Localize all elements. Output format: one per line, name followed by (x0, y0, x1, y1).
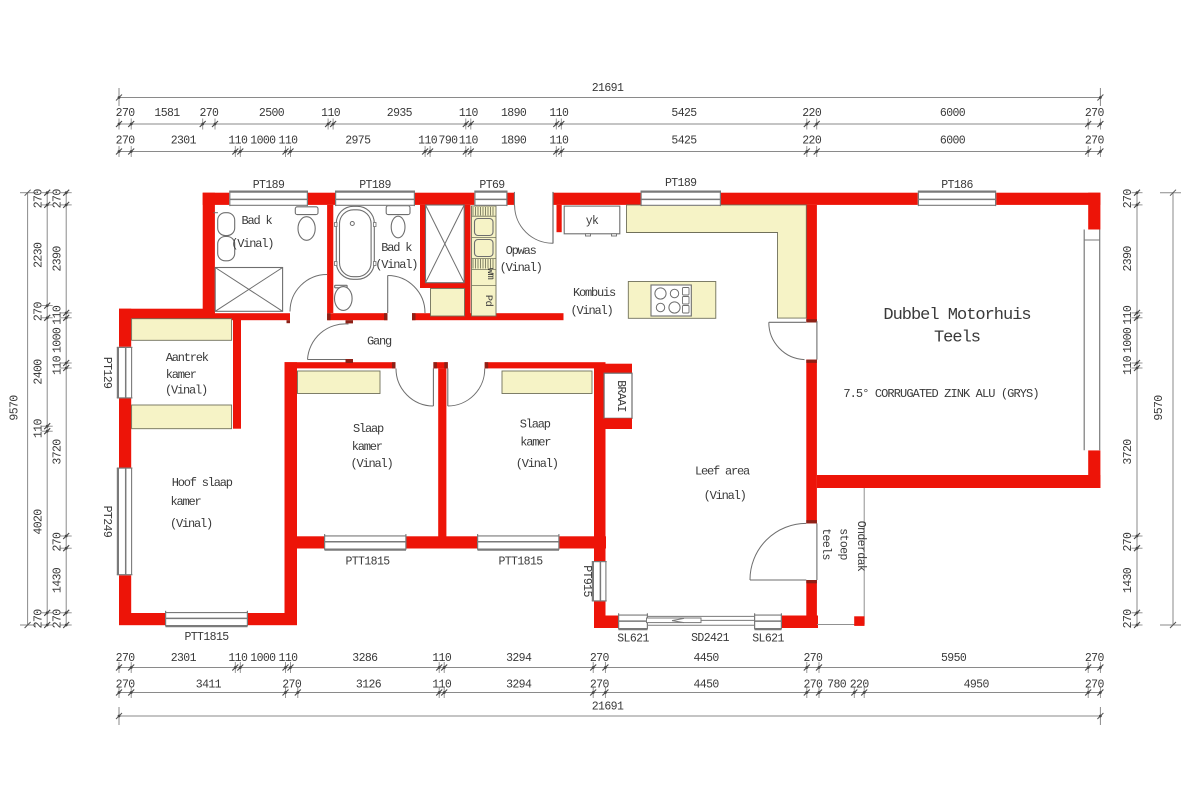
svg-text:270: 270 (33, 302, 46, 322)
svg-text:(Vinal): (Vinal) (570, 304, 612, 318)
svg-text:270: 270 (199, 107, 219, 120)
svg-text:110: 110 (279, 652, 299, 665)
svg-text:1890: 1890 (501, 107, 527, 120)
svg-text:270: 270 (1085, 652, 1105, 665)
svg-text:4020: 4020 (33, 509, 46, 535)
svg-text:1000: 1000 (250, 135, 276, 148)
svg-text:BRAAI: BRAAI (614, 380, 627, 412)
svg-text:4450: 4450 (693, 652, 719, 665)
svg-text:(Vinal): (Vinal) (516, 457, 558, 471)
svg-text:3294: 3294 (506, 679, 532, 692)
svg-text:wm: wm (484, 268, 496, 280)
svg-text:270: 270 (1085, 107, 1105, 120)
svg-text:3720: 3720 (1122, 439, 1135, 465)
svg-text:110: 110 (52, 305, 65, 325)
svg-text:2390: 2390 (52, 246, 65, 272)
svg-text:PT915: PT915 (580, 565, 593, 597)
svg-text:110: 110 (1122, 305, 1135, 325)
svg-text:(Vinal): (Vinal) (375, 258, 417, 272)
svg-text:SD2421: SD2421 (691, 632, 730, 645)
svg-text:5425: 5425 (671, 135, 697, 148)
svg-text:270: 270 (116, 135, 136, 148)
svg-text:110: 110 (52, 355, 65, 375)
svg-text:PT69: PT69 (479, 179, 505, 192)
svg-text:110: 110 (459, 135, 479, 148)
svg-text:6000: 6000 (940, 107, 966, 120)
svg-text:PTT1815: PTT1815 (345, 556, 390, 569)
svg-text:kamer: kamer (170, 495, 201, 509)
svg-text:Gang: Gang (367, 335, 392, 349)
svg-text:110: 110 (418, 135, 438, 148)
svg-text:270: 270 (52, 609, 65, 629)
svg-text:270: 270 (1085, 135, 1105, 148)
svg-text:270: 270 (590, 679, 610, 692)
svg-text:270: 270 (116, 107, 136, 120)
svg-text:7.5° CORRUGATED ZINK ALU (GRYS: 7.5° CORRUGATED ZINK ALU (GRYS) (843, 387, 1038, 401)
svg-text:2935: 2935 (387, 107, 413, 120)
svg-text:220: 220 (802, 135, 822, 148)
svg-text:220: 220 (850, 679, 870, 692)
svg-text:PT249: PT249 (100, 506, 113, 538)
svg-text:PTT1815: PTT1815 (184, 631, 229, 644)
svg-text:1000: 1000 (250, 652, 276, 665)
svg-text:2230: 2230 (33, 242, 46, 268)
svg-text:270: 270 (33, 609, 46, 629)
svg-text:110: 110 (432, 652, 452, 665)
svg-text:SL621: SL621 (617, 633, 649, 646)
svg-text:Leef area: Leef area (695, 465, 750, 479)
svg-text:3411: 3411 (196, 679, 222, 692)
svg-text:110: 110 (432, 679, 452, 692)
svg-text:kamer: kamer (166, 368, 197, 382)
svg-text:(Vinal): (Vinal) (231, 237, 273, 251)
svg-text:270: 270 (116, 679, 136, 692)
svg-text:2390: 2390 (1122, 246, 1135, 272)
svg-text:Slaap: Slaap (353, 422, 384, 436)
svg-text:Opwas: Opwas (506, 244, 537, 258)
svg-text:9570: 9570 (9, 395, 22, 421)
svg-text:(Vinal): (Vinal) (500, 261, 542, 275)
svg-text:270: 270 (1122, 609, 1135, 629)
svg-text:PT129: PT129 (100, 357, 113, 389)
svg-text:270: 270 (116, 652, 136, 665)
svg-text:270: 270 (590, 652, 610, 665)
svg-text:270: 270 (33, 189, 46, 209)
svg-text:110: 110 (321, 107, 341, 120)
svg-text:21691: 21691 (592, 82, 624, 95)
svg-text:4450: 4450 (693, 679, 719, 692)
svg-text:(Vinal): (Vinal) (350, 457, 392, 471)
svg-text:110: 110 (279, 135, 299, 148)
svg-text:110: 110 (33, 419, 46, 439)
svg-text:5425: 5425 (671, 107, 697, 120)
svg-text:3126: 3126 (356, 679, 382, 692)
svg-text:270: 270 (803, 679, 823, 692)
svg-text:9570: 9570 (1153, 395, 1166, 421)
svg-text:110: 110 (459, 107, 479, 120)
svg-text:1430: 1430 (1122, 567, 1135, 593)
svg-text:Aantrek: Aantrek (166, 351, 209, 365)
svg-text:teels: teels (819, 528, 832, 560)
svg-text:stoep: stoep (837, 528, 850, 560)
svg-text:3286: 3286 (352, 652, 378, 665)
svg-text:2500: 2500 (259, 107, 285, 120)
svg-text:Bad k: Bad k (241, 214, 272, 228)
svg-text:6000: 6000 (940, 135, 966, 148)
svg-text:SL621: SL621 (752, 633, 784, 646)
svg-text:780: 780 (827, 679, 847, 692)
svg-text:270: 270 (1122, 189, 1135, 209)
svg-text:PT189: PT189 (253, 179, 285, 192)
svg-text:2301: 2301 (171, 652, 197, 665)
svg-text:110: 110 (1122, 355, 1135, 375)
svg-text:PTT1815: PTT1815 (498, 556, 543, 569)
svg-text:220: 220 (802, 107, 822, 120)
svg-text:yk: yk (586, 215, 599, 228)
svg-text:270: 270 (803, 652, 823, 665)
svg-text:110: 110 (228, 652, 248, 665)
svg-text:(Vinal): (Vinal) (165, 384, 207, 398)
svg-text:2301: 2301 (171, 135, 197, 148)
svg-text:Kombuis: Kombuis (573, 286, 616, 300)
svg-text:PT189: PT189 (359, 179, 391, 192)
svg-text:270: 270 (1085, 679, 1105, 692)
svg-text:kamer: kamer (352, 440, 383, 454)
svg-text:21691: 21691 (592, 701, 624, 714)
svg-text:Pd: Pd (482, 295, 494, 307)
svg-text:(Vinal): (Vinal) (170, 517, 212, 531)
svg-text:110: 110 (228, 135, 248, 148)
svg-text:(Vinal): (Vinal) (704, 489, 746, 503)
svg-text:790: 790 (439, 135, 459, 148)
svg-text:2400: 2400 (33, 359, 46, 385)
svg-text:2975: 2975 (345, 135, 371, 148)
svg-text:4950: 4950 (964, 679, 990, 692)
svg-text:Dubbel Motorhuis: Dubbel Motorhuis (883, 306, 1030, 325)
svg-text:Onderdak: Onderdak (854, 521, 867, 572)
svg-text:kamer: kamer (520, 436, 551, 450)
svg-text:Hoof slaap: Hoof slaap (172, 476, 233, 490)
svg-text:PT186: PT186 (941, 179, 973, 192)
svg-text:PT189: PT189 (665, 177, 697, 190)
svg-text:270: 270 (282, 679, 302, 692)
svg-text:270: 270 (1122, 532, 1135, 552)
svg-text:3294: 3294 (506, 652, 532, 665)
svg-text:Bad k: Bad k (381, 241, 412, 255)
svg-text:1890: 1890 (501, 135, 527, 148)
svg-text:Teels: Teels (934, 329, 980, 348)
svg-text:110: 110 (549, 135, 569, 148)
svg-text:1581: 1581 (154, 107, 180, 120)
svg-text:1000: 1000 (1122, 327, 1135, 353)
svg-text:1430: 1430 (52, 567, 65, 593)
svg-text:270: 270 (52, 532, 65, 552)
svg-text:3720: 3720 (52, 439, 65, 465)
svg-text:5950: 5950 (941, 652, 967, 665)
svg-text:270: 270 (52, 189, 65, 209)
svg-text:Slaap: Slaap (520, 418, 551, 432)
svg-text:110: 110 (549, 107, 569, 120)
svg-text:1000: 1000 (52, 327, 65, 353)
